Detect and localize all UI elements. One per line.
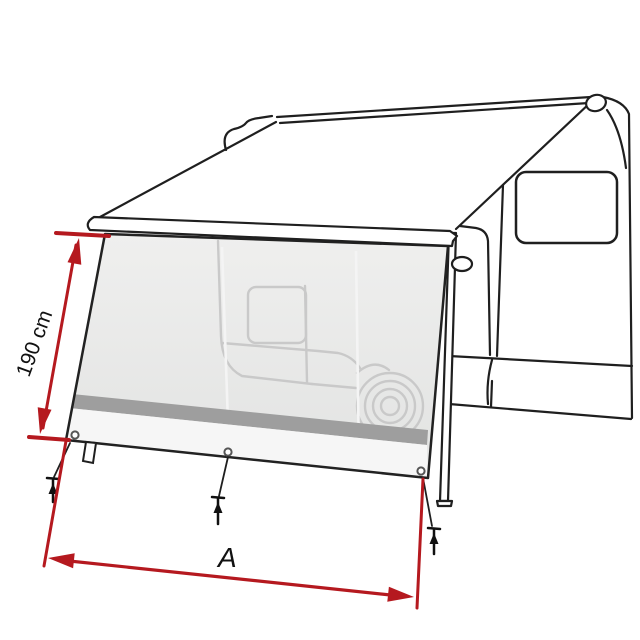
height-dim-tick-top	[56, 233, 109, 236]
caravan-door-left-edge	[460, 226, 490, 355]
height-dim-tick-bottom	[29, 437, 69, 440]
width-extension-line	[417, 479, 423, 608]
height-dim-arrow-bottom	[38, 407, 52, 434]
width-dim-arrow-right	[387, 587, 414, 602]
peg-center	[212, 497, 224, 524]
awning-fabric-left-edge	[100, 122, 276, 217]
width-dimension-label: A	[216, 542, 237, 573]
panel-grommet-center	[224, 448, 231, 455]
caravan-body	[449, 97, 632, 419]
leg-foot	[437, 501, 452, 506]
height-dim-arrow-top	[68, 238, 82, 265]
side-panel	[66, 234, 448, 478]
caravan-wall-inner-curve	[607, 110, 626, 168]
awning-case-end-cap	[584, 93, 608, 114]
caravan-skirt-crease	[449, 356, 632, 366]
caravan-skirt-tick	[491, 381, 492, 407]
height-dimension-label: 190 cm	[12, 307, 57, 380]
panel-grommet-left	[71, 431, 78, 438]
diagram-canvas: 190 cm A	[0, 0, 640, 640]
leg-knob	[452, 257, 472, 271]
height-extension-line	[44, 441, 66, 566]
peg-right	[428, 528, 440, 554]
ground-pegs	[47, 478, 440, 554]
caravan-wall-corner	[603, 97, 632, 418]
caravan-door-right-edge	[497, 185, 503, 356]
caravan-window	[516, 172, 617, 243]
panel-grommet-right	[417, 467, 424, 474]
panel-strap-tab	[83, 442, 96, 463]
caravan-skirt-bottom	[449, 404, 631, 419]
awning-diagram: 190 cm A	[0, 0, 640, 640]
width-dim-arrow-left	[48, 553, 75, 568]
